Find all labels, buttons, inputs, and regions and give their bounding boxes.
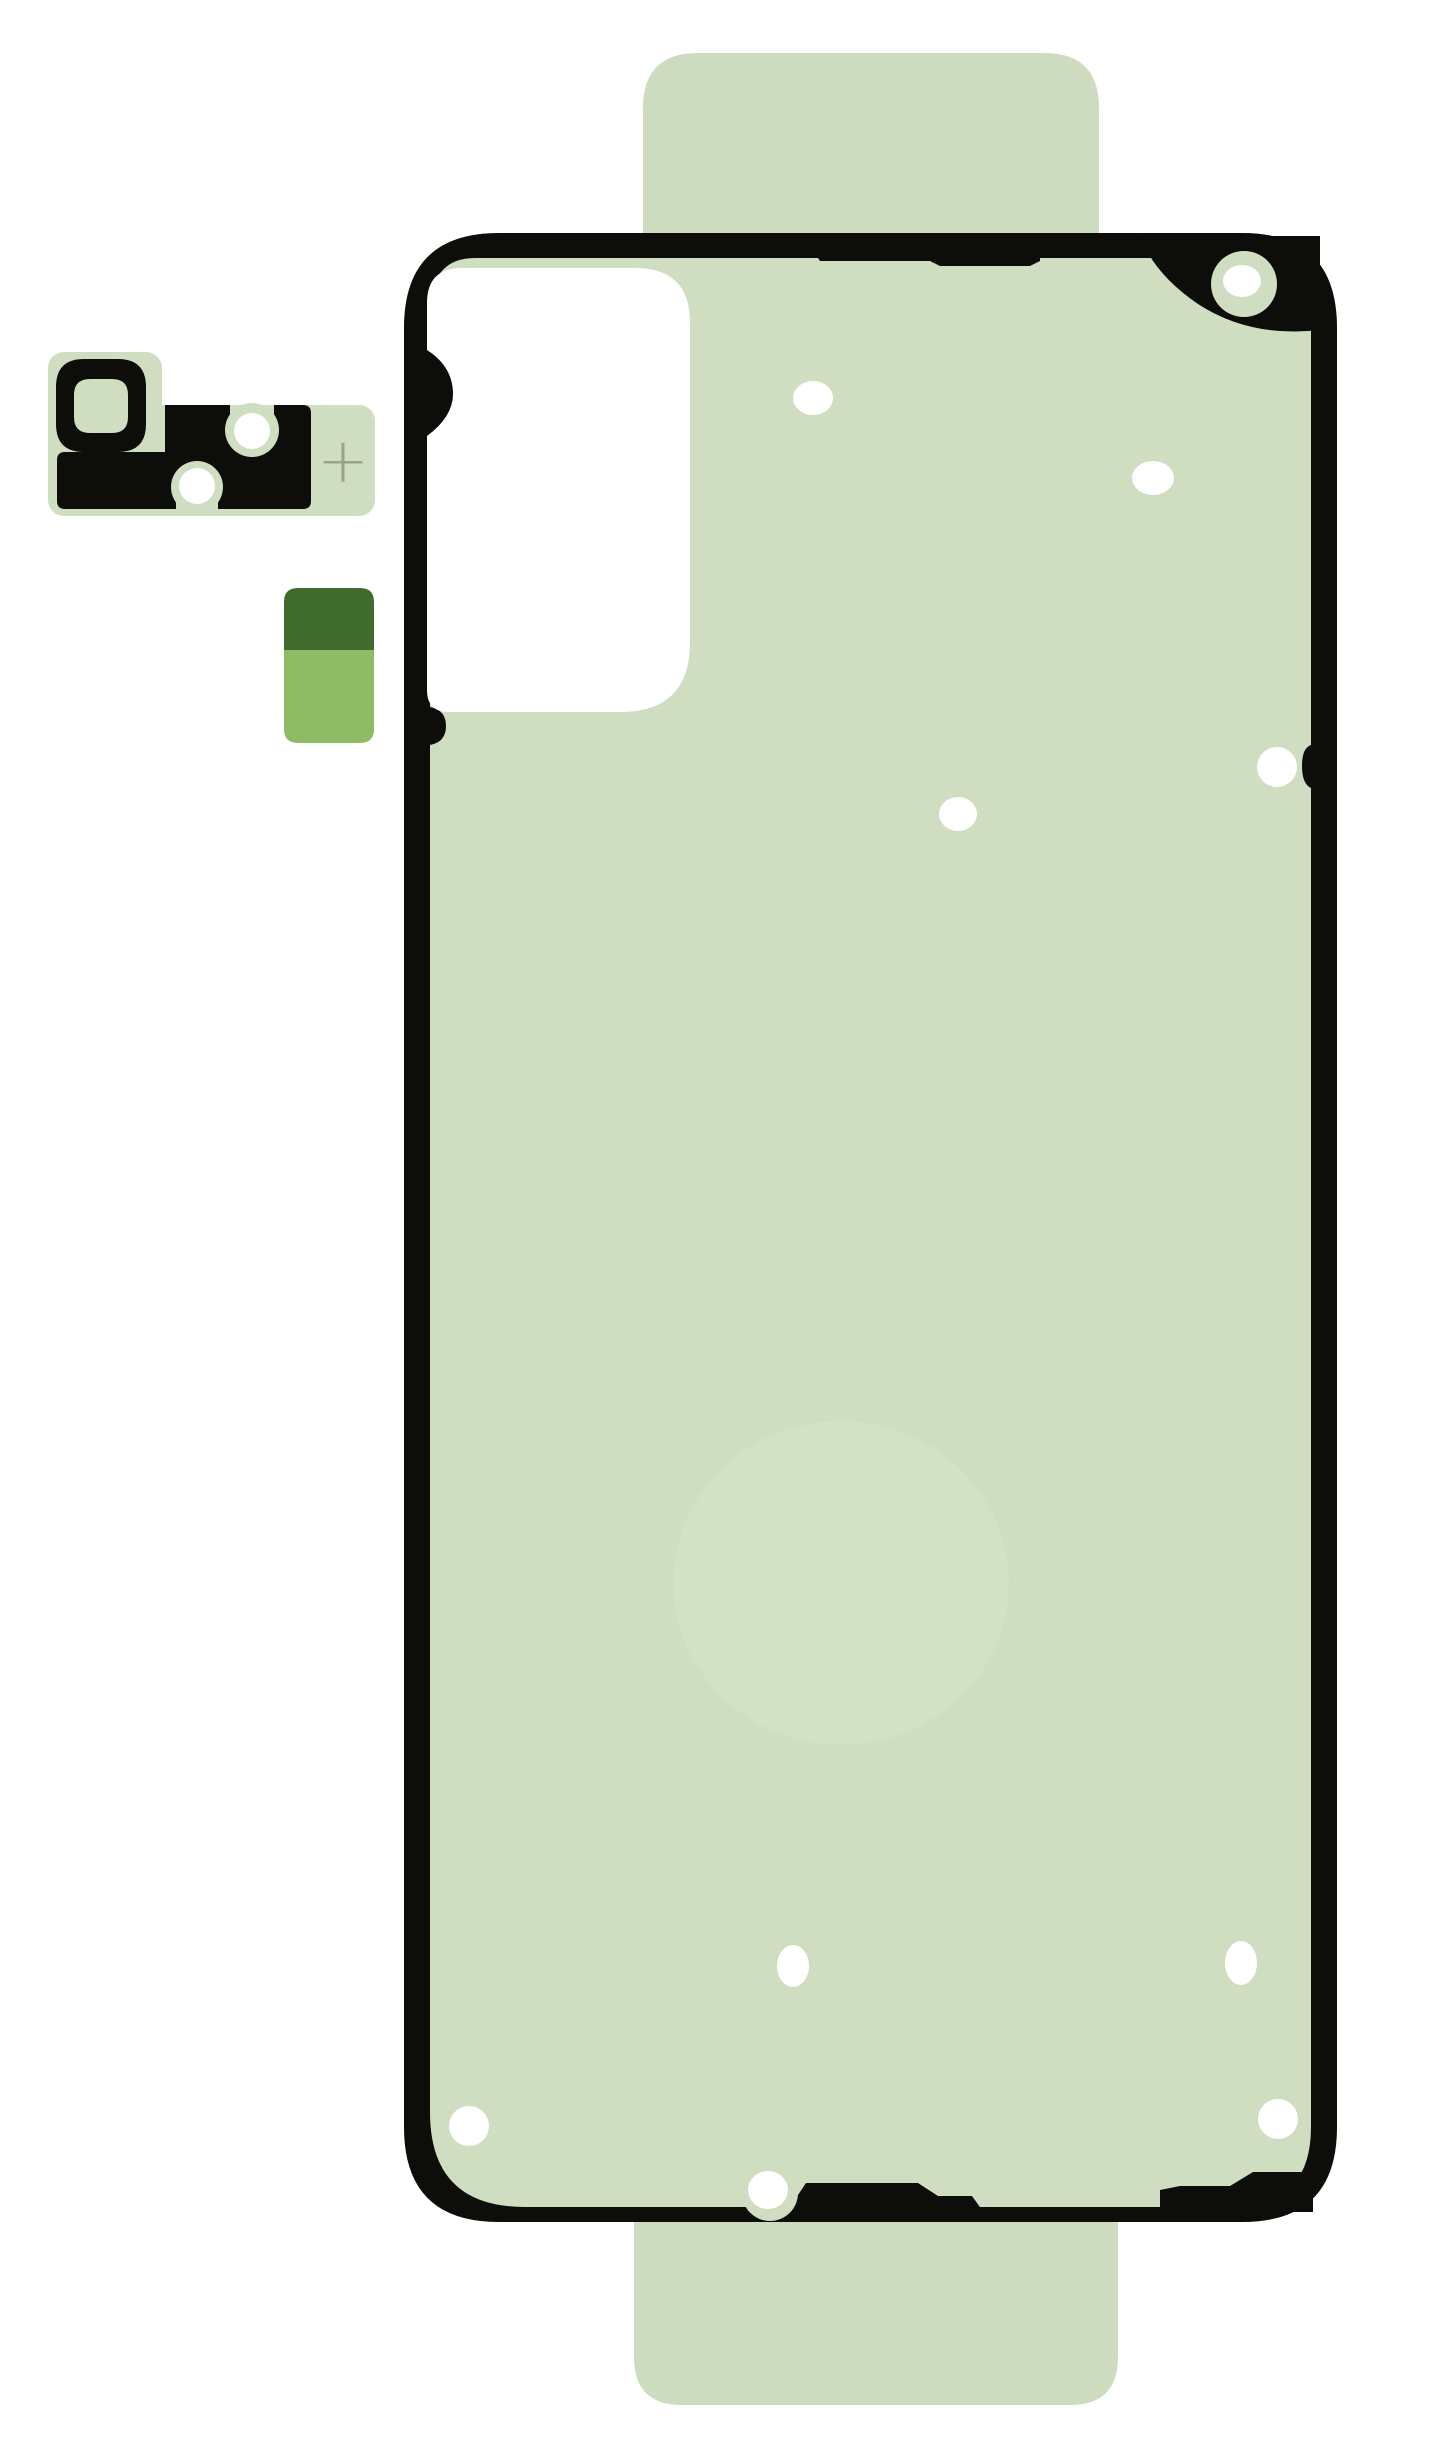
punch-hole [449, 2106, 489, 2146]
product-image-canvas: + [0, 0, 1445, 2452]
punch-hole [179, 468, 215, 504]
punch-hole [793, 381, 833, 415]
registration-mark: + [317, 424, 369, 497]
camera-cutout-window [427, 268, 690, 712]
two-tone-tab-sticker [284, 588, 374, 743]
main-adhesive-sheet [404, 53, 1337, 2405]
punch-hole [1132, 461, 1174, 495]
punch-hole [1225, 1941, 1257, 1985]
tab-sticker-light-half [284, 650, 374, 743]
tab-sticker-dark-half [284, 588, 374, 650]
camera-bezel-adhesive: + [48, 352, 375, 516]
punch-hole [1258, 2099, 1298, 2139]
punch-hole [234, 413, 270, 449]
punch-hole [1223, 265, 1261, 297]
adhesive-kit-illustration: + [0, 0, 1445, 2452]
punch-hole [1257, 747, 1297, 787]
punch-hole [777, 1945, 809, 1987]
punch-hole [939, 797, 977, 831]
punch-hole [748, 2171, 788, 2209]
sheet-watermark [673, 1421, 1009, 1745]
